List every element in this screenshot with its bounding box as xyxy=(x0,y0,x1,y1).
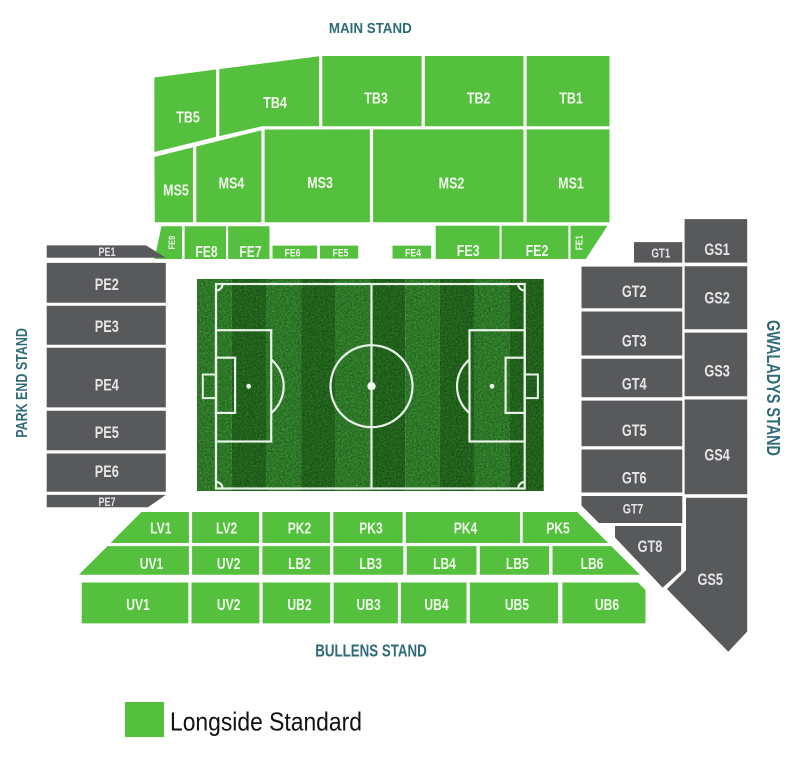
svg-text:UB5: UB5 xyxy=(505,596,529,614)
svg-text:LB2: LB2 xyxy=(288,555,311,573)
svg-text:FE2: FE2 xyxy=(526,242,549,260)
svg-text:MS4: MS4 xyxy=(219,175,245,193)
svg-text:LB6: LB6 xyxy=(581,555,604,573)
svg-text:GS5: GS5 xyxy=(697,570,722,589)
svg-text:GS4: GS4 xyxy=(704,446,730,465)
svg-text:UB6: UB6 xyxy=(595,596,619,614)
svg-text:UB2: UB2 xyxy=(287,596,311,614)
svg-text:PK4: PK4 xyxy=(454,519,478,537)
svg-text:MS1: MS1 xyxy=(558,175,584,193)
svg-text:PE1: PE1 xyxy=(99,246,116,260)
svg-text:GT3: GT3 xyxy=(622,332,647,351)
svg-text:Longside Standard: Longside Standard xyxy=(170,708,362,737)
svg-text:FE3: FE3 xyxy=(457,242,480,260)
svg-text:TB5: TB5 xyxy=(176,109,200,127)
svg-text:GT8: GT8 xyxy=(638,537,663,556)
svg-text:UV2: UV2 xyxy=(217,596,241,614)
svg-text:PARK END STAND: PARK END STAND xyxy=(14,328,32,438)
svg-text:FE1: FE1 xyxy=(572,235,584,250)
svg-text:MS2: MS2 xyxy=(439,175,465,193)
svg-text:TB2: TB2 xyxy=(467,90,491,108)
svg-text:TB4: TB4 xyxy=(263,95,287,113)
svg-text:FE9: FE9 xyxy=(166,236,177,250)
svg-text:FE8: FE8 xyxy=(195,243,217,261)
svg-text:PK3: PK3 xyxy=(359,519,383,537)
svg-text:PE6: PE6 xyxy=(95,462,119,481)
svg-text:FE5: FE5 xyxy=(332,247,348,259)
svg-text:UB3: UB3 xyxy=(357,596,381,614)
svg-text:GT5: GT5 xyxy=(622,421,647,440)
svg-text:UB4: UB4 xyxy=(424,596,448,614)
svg-text:MS5: MS5 xyxy=(163,182,189,200)
svg-text:GS1: GS1 xyxy=(704,240,729,259)
svg-text:GT4: GT4 xyxy=(622,375,647,394)
svg-text:PK5: PK5 xyxy=(546,519,570,537)
svg-text:GWALADYS STAND: GWALADYS STAND xyxy=(762,320,783,456)
svg-text:MAIN STAND: MAIN STAND xyxy=(329,20,412,37)
svg-text:UV2: UV2 xyxy=(217,555,241,573)
svg-text:PE4: PE4 xyxy=(95,376,120,395)
svg-text:BULLENS STAND: BULLENS STAND xyxy=(315,642,427,661)
svg-text:FE6: FE6 xyxy=(284,247,300,259)
svg-text:LV1: LV1 xyxy=(150,519,171,537)
svg-text:GT2: GT2 xyxy=(622,282,647,301)
svg-text:PE7: PE7 xyxy=(99,496,116,510)
svg-text:LB3: LB3 xyxy=(359,555,382,573)
svg-text:UV1: UV1 xyxy=(126,596,150,614)
svg-text:TB3: TB3 xyxy=(364,90,388,108)
svg-text:LB4: LB4 xyxy=(433,555,456,573)
svg-text:FE7: FE7 xyxy=(239,243,261,261)
svg-text:GT7: GT7 xyxy=(623,501,644,517)
svg-text:PE2: PE2 xyxy=(95,275,119,294)
svg-text:FE4: FE4 xyxy=(405,247,421,259)
svg-text:TB1: TB1 xyxy=(559,90,583,108)
svg-text:GS3: GS3 xyxy=(704,362,729,381)
svg-text:GS2: GS2 xyxy=(704,289,729,308)
svg-text:LB5: LB5 xyxy=(506,555,529,573)
svg-text:GT6: GT6 xyxy=(622,469,647,488)
svg-text:PE3: PE3 xyxy=(95,317,119,336)
svg-text:MS3: MS3 xyxy=(307,175,333,193)
svg-text:LV2: LV2 xyxy=(216,519,237,537)
svg-text:UV1: UV1 xyxy=(140,555,164,573)
svg-text:PE5: PE5 xyxy=(95,423,119,442)
svg-text:PK2: PK2 xyxy=(288,519,312,537)
svg-text:GT1: GT1 xyxy=(651,247,670,261)
